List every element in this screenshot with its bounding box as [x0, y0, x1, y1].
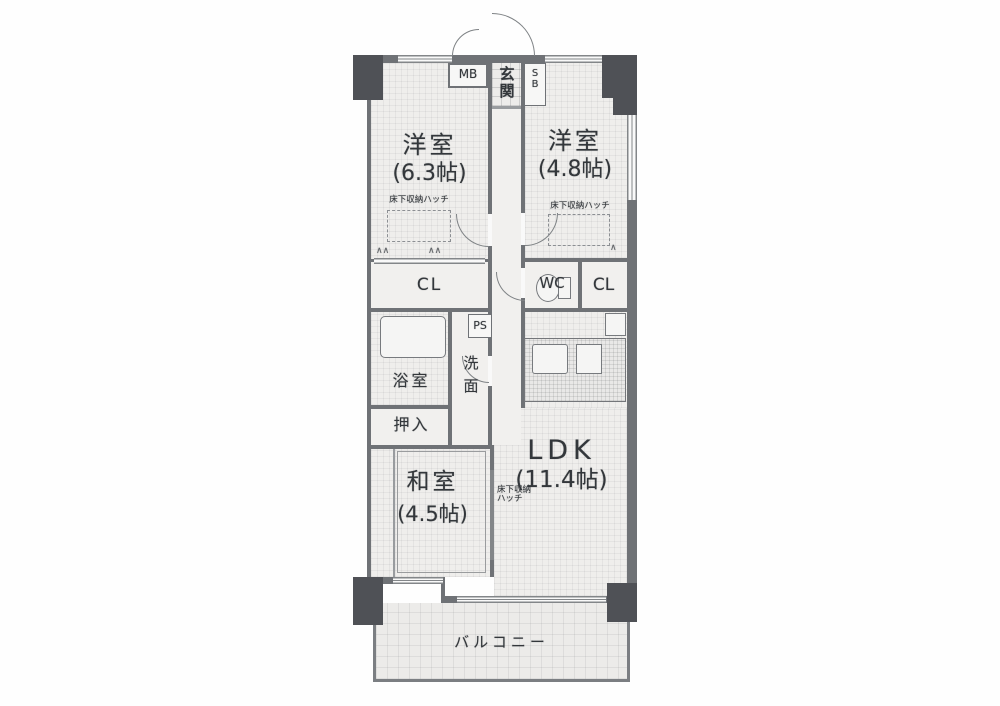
wall-entrance-step: [492, 106, 521, 109]
pillar-bottom-left: [353, 577, 383, 625]
wall-washitsu-top: [371, 445, 494, 449]
bathtub: [380, 316, 446, 358]
closet-right-label: CL: [580, 276, 627, 295]
room2-hatch-note: 床下収納ハッチ: [546, 202, 614, 211]
room2-name: 洋室: [523, 128, 627, 154]
kitchen-sink: [532, 344, 568, 374]
bath-label: 浴室: [375, 372, 448, 390]
pillar-top-right-ext: [613, 97, 637, 115]
room1-size: (6.3帖): [367, 162, 492, 186]
window-bottom-ldk-sliding: [457, 596, 606, 603]
entrance-label: 玄 関: [494, 66, 520, 99]
room2-hatch-box: [548, 214, 610, 246]
hanger-symbol-left-a: ∧∧: [376, 247, 389, 257]
wall-hall-left: [488, 63, 492, 445]
kitchen-stove: [576, 344, 602, 374]
floor-plan-drawing: MB S B 玄 関 PS 床下収納ハッチ 床下収納ハッチ 床下収納 ハッチ ∧…: [0, 0, 1000, 706]
wc-label: WC: [527, 275, 577, 292]
kitchen-cabinet: [605, 313, 626, 336]
room1-hatch-box: [387, 210, 451, 242]
pillar-bottom-right: [607, 583, 637, 622]
pipe-space-label: PS: [468, 320, 492, 332]
hanger-symbol-right: ∧: [610, 244, 617, 254]
washitsu-size: (4.5帖): [369, 503, 496, 526]
room1-hatch-note: 床下収納ハッチ: [385, 196, 453, 205]
entrance-side-door-arc: [452, 29, 479, 56]
window-bottom-washitsu: [393, 577, 443, 584]
wall-closet-row-top-right: [521, 258, 627, 262]
hanger-symbol-left-b: ∧∧: [428, 247, 441, 257]
washroom-label: 洗 面: [458, 352, 484, 397]
ldk-name: LDK: [496, 436, 627, 466]
ldk-size: (11.4帖): [494, 468, 629, 493]
pillar-top-left: [353, 55, 383, 100]
meter-box-label: MB: [448, 68, 488, 81]
window-top-room1: [398, 55, 452, 63]
wall-bath-wash-divider: [448, 312, 452, 445]
shoe-box-label: S B: [524, 68, 546, 90]
wall-bath-bottom: [371, 405, 452, 409]
entrance-door-arc: [492, 13, 535, 56]
oshiire-label: 押入: [375, 416, 448, 434]
floor-plan-page: MB S B 玄 関 PS 床下収納ハッチ 床下収納ハッチ 床下収納 ハッチ ∧…: [0, 0, 1000, 706]
room1-name: 洋室: [371, 132, 488, 158]
balcony-label: バルコニー: [373, 634, 630, 651]
wall-closet-row-bottom-left: [371, 308, 492, 312]
pillar-top-right: [602, 55, 637, 98]
room2-size: (4.8帖): [519, 158, 631, 182]
window-top-room2: [545, 55, 602, 63]
washitsu-name: 和室: [373, 470, 492, 495]
closet-left-label: CL: [371, 276, 488, 295]
closet-left-doors: [374, 258, 485, 264]
wall-closet-row-bottom-right: [521, 308, 627, 312]
